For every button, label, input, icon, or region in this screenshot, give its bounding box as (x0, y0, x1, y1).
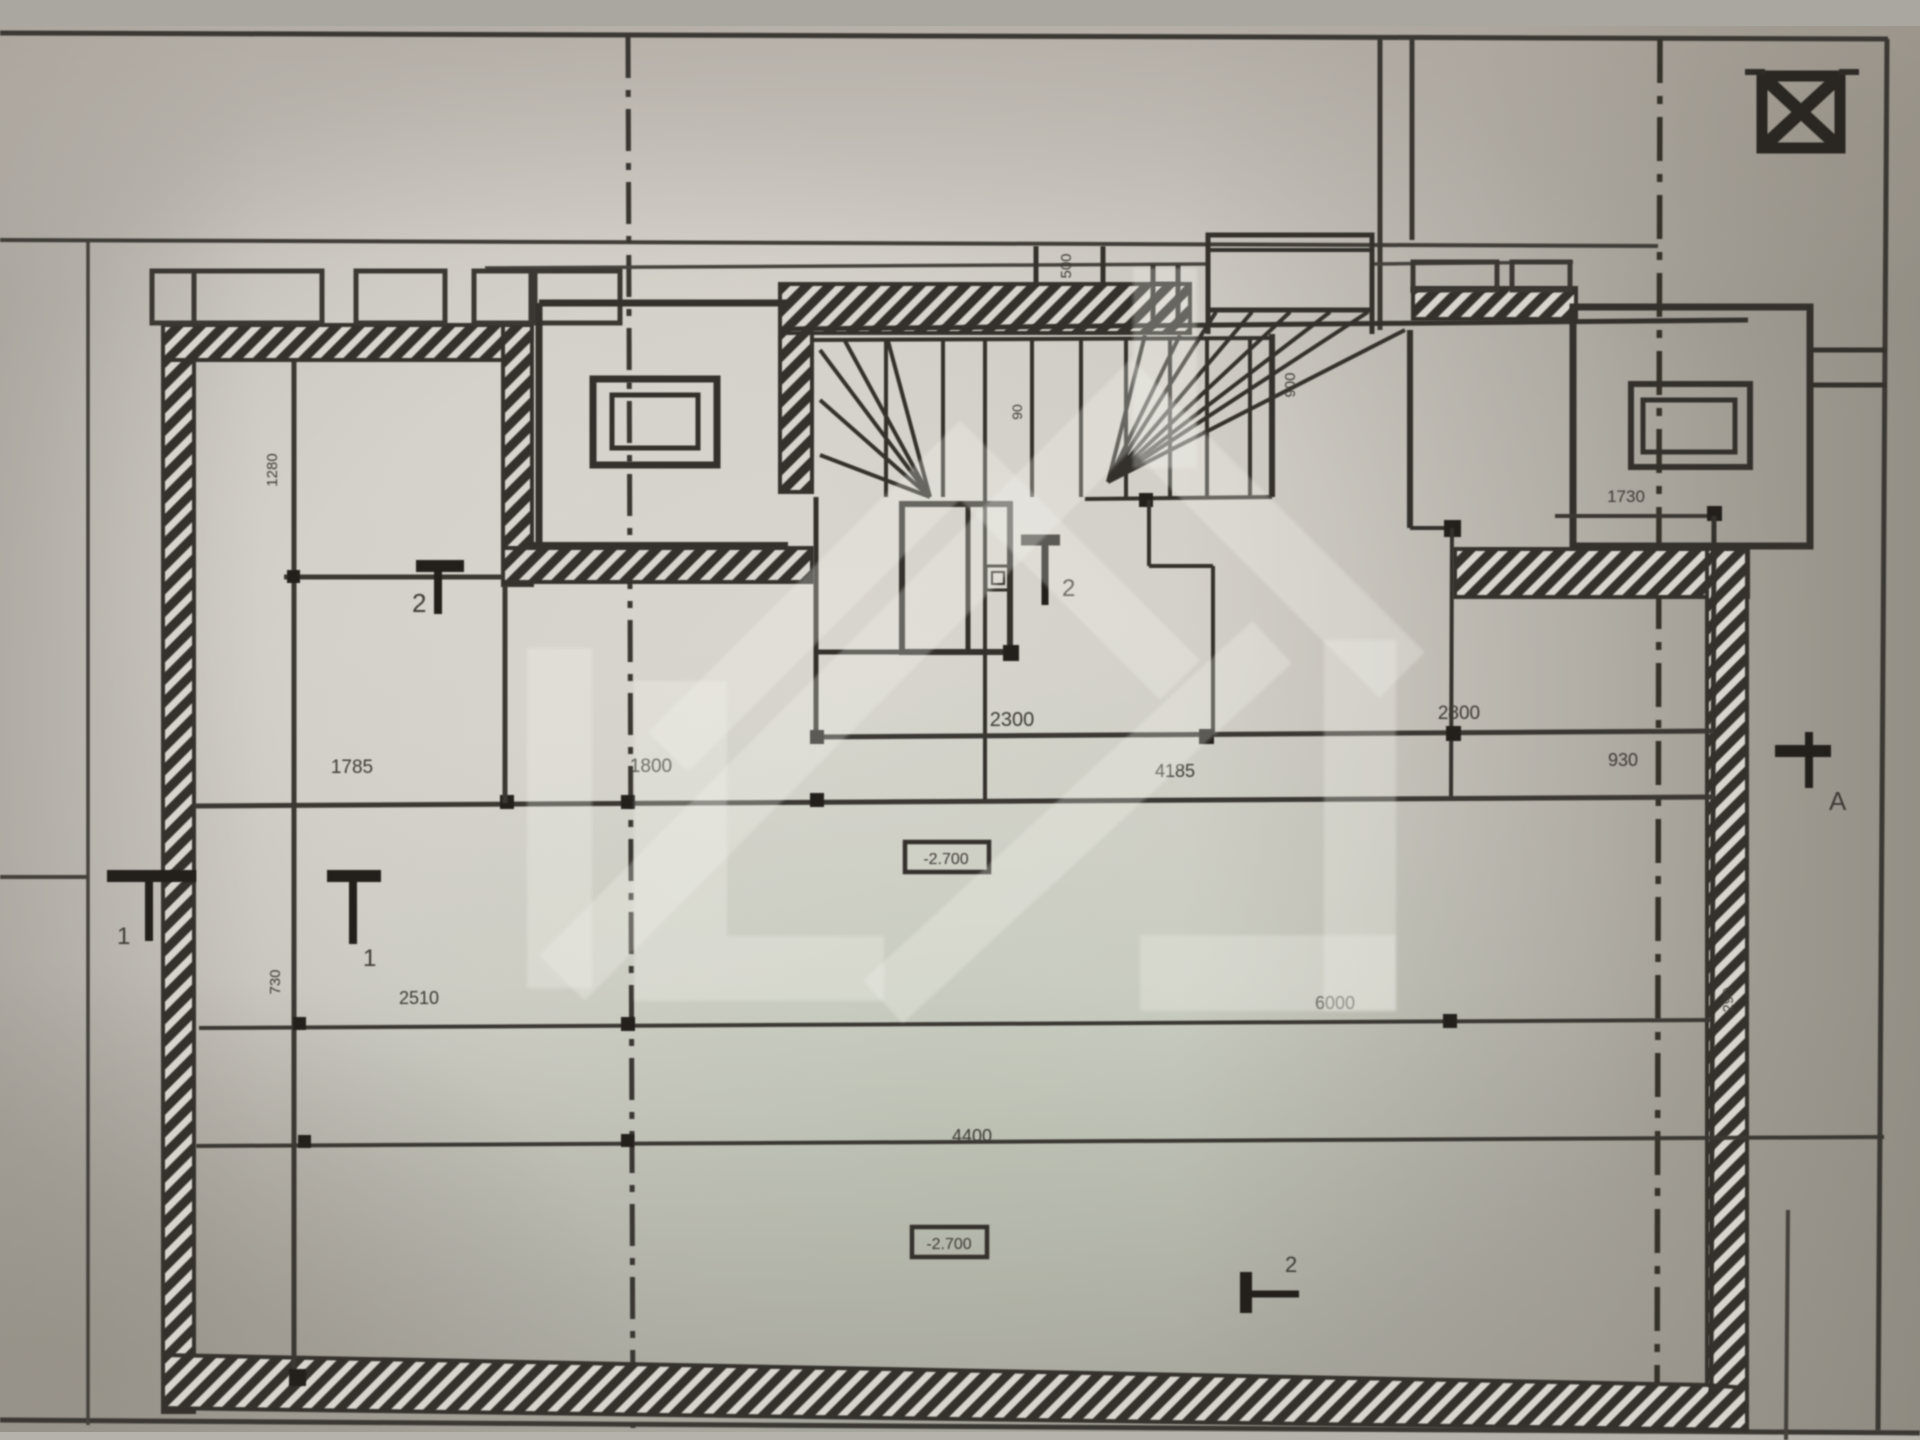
svg-text:1: 1 (363, 945, 376, 972)
svg-text:290: 290 (1720, 987, 1737, 1012)
svg-text:1: 1 (117, 923, 130, 950)
svg-text:4400: 4400 (952, 1126, 992, 1146)
svg-text:500: 500 (1058, 253, 1075, 278)
svg-text:1280: 1280 (264, 453, 281, 486)
svg-text:2800: 2800 (1438, 703, 1480, 724)
svg-text:1730: 1730 (1607, 487, 1645, 506)
svg-text:2: 2 (412, 588, 426, 618)
svg-text:900: 900 (1282, 372, 1299, 397)
svg-text:A: A (1829, 786, 1847, 816)
svg-text:90: 90 (1009, 404, 1025, 420)
svg-text:2: 2 (1285, 1252, 1297, 1277)
svg-text:-2.700: -2.700 (923, 851, 968, 868)
svg-text:730: 730 (267, 969, 284, 994)
svg-text:2510: 2510 (399, 988, 439, 1008)
svg-text:-2.700: -2.700 (926, 1236, 971, 1253)
svg-text:930: 930 (1608, 750, 1638, 770)
svg-text:2300: 2300 (990, 709, 1035, 731)
svg-text:1785: 1785 (331, 757, 373, 778)
